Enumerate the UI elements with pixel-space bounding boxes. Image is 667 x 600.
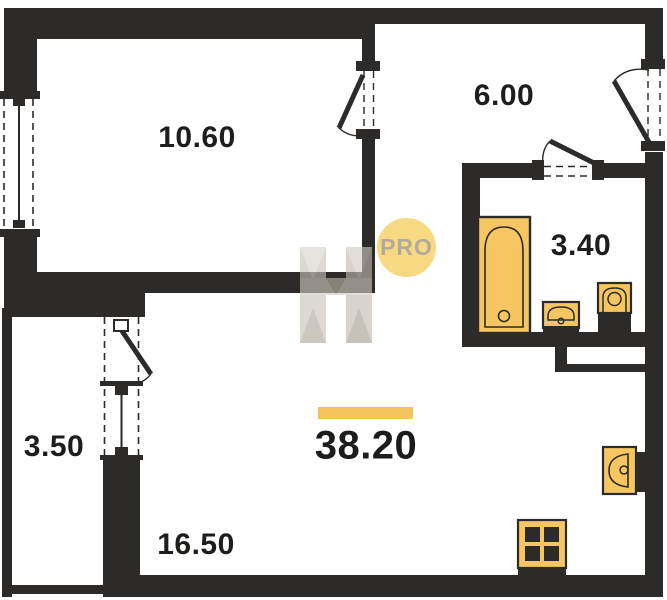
balcony-door-leaf	[122, 331, 151, 374]
stove-burner	[544, 527, 559, 542]
watermark-h-logo	[300, 247, 372, 343]
kitchen-sink	[603, 447, 645, 494]
stove-burner	[544, 546, 559, 561]
pro-badge-text: PRO	[380, 234, 433, 261]
toilet-tank	[598, 313, 631, 333]
stove	[518, 520, 566, 575]
area-label-room-10-60: 10.60	[158, 121, 236, 155]
door-swing-arc	[614, 69, 649, 81]
floor-plan-drawing	[0, 0, 667, 600]
bathtub	[478, 217, 530, 333]
door-leaf	[550, 141, 598, 165]
window-room-left	[4, 99, 33, 229]
stove-burner	[525, 527, 540, 542]
bathroom-door	[543, 141, 598, 176]
bathroom-sink	[543, 302, 579, 333]
total-area-label: 38.20	[315, 424, 418, 469]
stove-burner	[525, 546, 540, 561]
balcony-door-and-window	[100, 317, 151, 460]
toilet	[598, 283, 631, 333]
entrance-door	[614, 69, 660, 144]
total-area-accent-bar	[318, 407, 413, 419]
pro-watermark-badge: PRO	[377, 218, 436, 277]
balcony-door-hinge	[114, 320, 128, 331]
door-leaf	[339, 75, 363, 128]
area-label-hallway-6-00: 6.00	[474, 79, 534, 113]
door-leaf	[614, 81, 650, 144]
area-label-bathroom-3-40: 3.40	[551, 229, 611, 263]
area-label-balcony-3-50: 3.50	[24, 430, 84, 464]
floor-plan: 10.60 6.00 3.40 3.50 16.50 38.20 PRO	[0, 0, 667, 600]
area-label-living-16-50: 16.50	[157, 528, 235, 562]
door-room-10-60	[339, 71, 374, 139]
